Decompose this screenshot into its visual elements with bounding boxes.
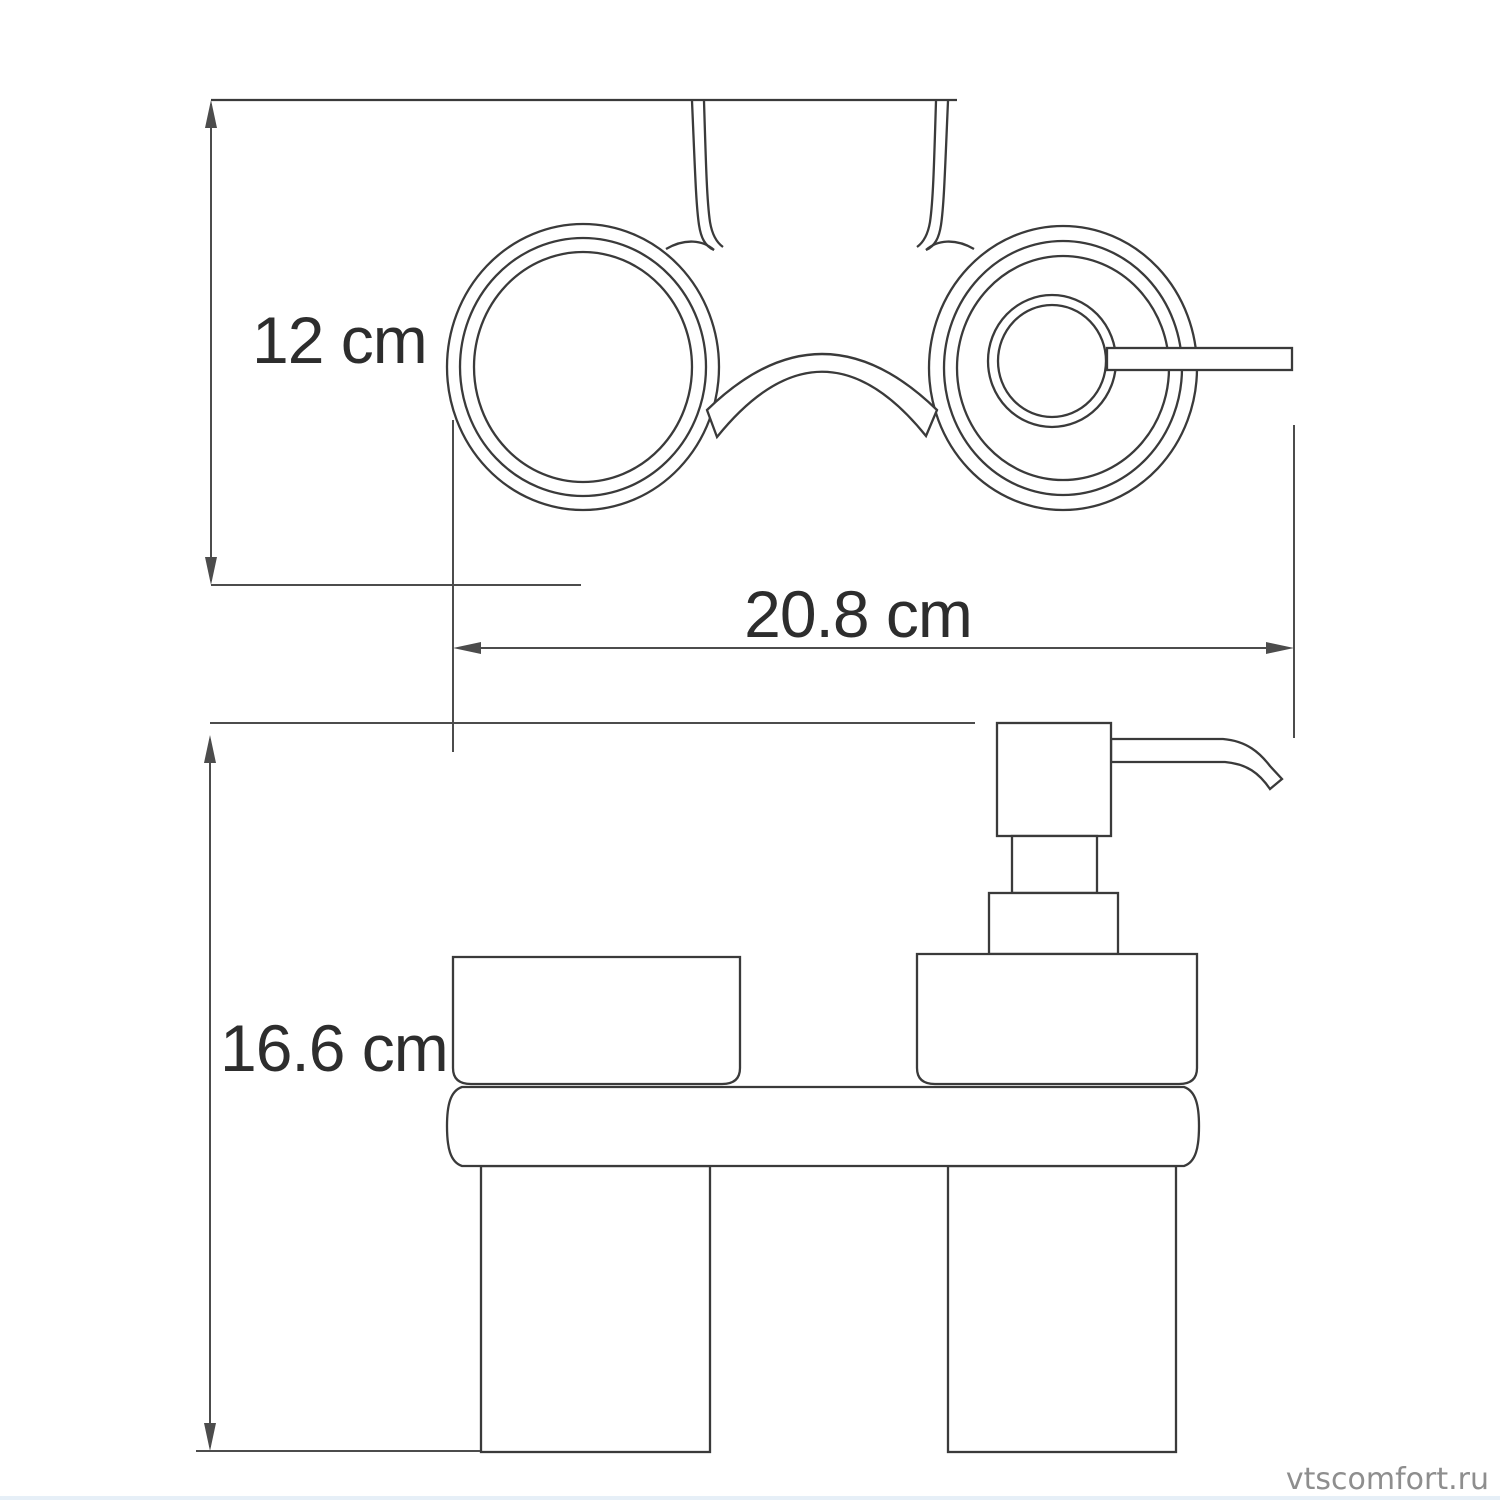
tumbler-front — [453, 957, 740, 1084]
soap-dispenser — [917, 723, 1282, 1084]
dispenser-lower-body — [948, 1166, 1176, 1452]
left-holder-ring — [447, 224, 719, 510]
dispenser-collar — [989, 893, 1118, 954]
left-ring-middle-circle — [460, 238, 706, 496]
dispenser-bottle-front — [917, 954, 1197, 1084]
total-height-arrow-down-icon — [204, 1423, 216, 1451]
total-height-dim-label: 16.6 cm — [220, 1011, 448, 1085]
bracket-right-inner-edge — [917, 101, 936, 247]
connector-bridge — [707, 354, 937, 437]
width-dim-label: 20.8 cm — [744, 577, 972, 651]
height-arrow-down-icon — [205, 557, 217, 585]
holder-bar — [447, 1087, 1199, 1166]
width-arrow-left-icon — [453, 642, 481, 654]
tumbler-lower-body — [481, 1166, 710, 1452]
pump-spout-top — [1107, 348, 1292, 370]
watermark-text: vtscomfort.ru — [1286, 1462, 1489, 1497]
left-ring-inner-circle — [474, 252, 692, 482]
pump-spout — [1111, 739, 1282, 789]
dispenser-neck — [1012, 836, 1097, 893]
width-arrow-right-icon — [1266, 642, 1294, 654]
height-dim-label: 12 cm — [252, 303, 427, 377]
left-ring-outer-circle — [447, 224, 719, 510]
drawing-canvas: 12 cm 20.8 cm 16.6 cm vtscomfort.ru — [0, 0, 1500, 1500]
height-arrow-up-icon — [205, 100, 217, 128]
front-view — [447, 723, 1282, 1452]
pump-head — [997, 723, 1111, 836]
technical-drawing: 12 cm 20.8 cm 16.6 cm vtscomfort.ru — [0, 0, 1500, 1500]
bottom-edge-strip — [0, 1496, 1500, 1500]
dimension-height: 12 cm — [205, 100, 581, 585]
pump-top-inner-circle — [998, 305, 1106, 417]
pump-top — [988, 295, 1292, 427]
wall-bracket — [666, 101, 974, 250]
total-height-arrow-up-icon — [204, 735, 216, 763]
bracket-left-inner-edge — [704, 101, 723, 247]
